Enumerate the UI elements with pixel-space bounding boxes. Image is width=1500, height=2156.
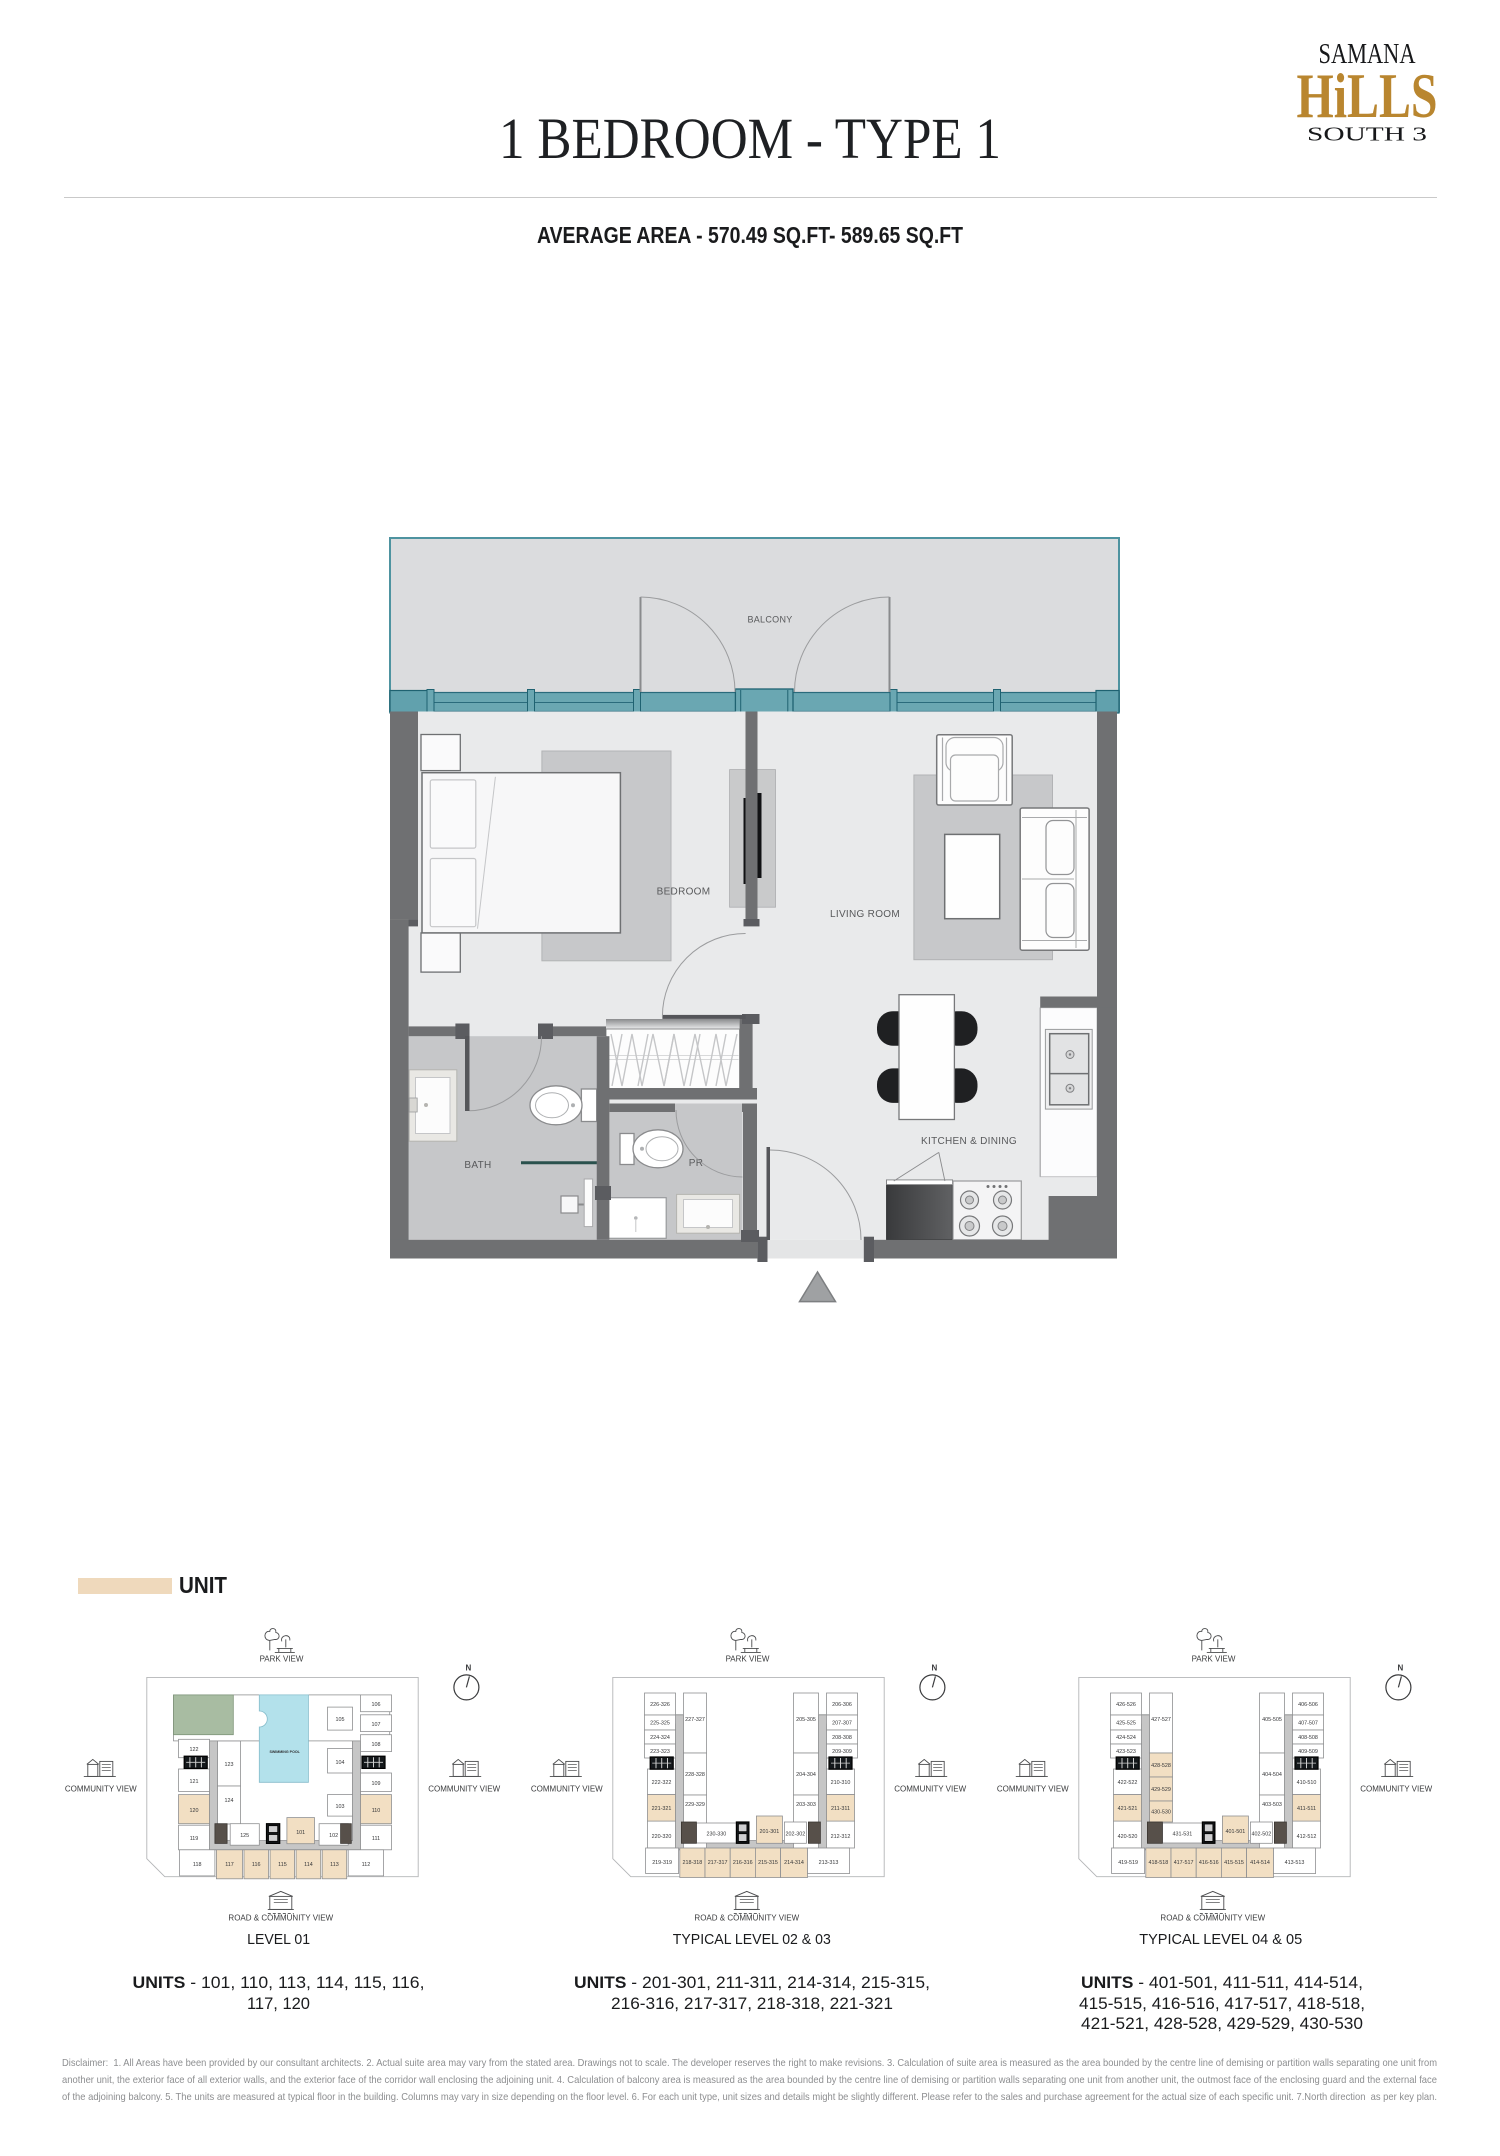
svg-text:431-531: 431-531 — [1173, 1832, 1193, 1838]
svg-text:207-307: 207-307 — [832, 1721, 852, 1727]
svg-text:112: 112 — [362, 1862, 371, 1868]
svg-text:208-308: 208-308 — [832, 1735, 852, 1741]
svg-text:404-504: 404-504 — [1262, 1772, 1282, 1778]
svg-text:101: 101 — [296, 1830, 305, 1836]
svg-text:COMMUNITY VIEW: COMMUNITY VIEW — [65, 1784, 137, 1793]
svg-text:415-515, 416-516, 417-517, 418: 415-515, 416-516, 417-517, 418-518, — [1079, 1995, 1365, 2013]
svg-text:SWIMMING POOL: SWIMMING POOL — [270, 1750, 301, 1754]
svg-text:LIVING ROOM: LIVING ROOM — [830, 909, 900, 920]
svg-text:KITCHEN & DINING: KITCHEN & DINING — [921, 1136, 1017, 1147]
svg-text:ROAD & COMMUNITY VIEW: ROAD & COMMUNITY VIEW — [694, 1913, 799, 1922]
svg-text:413-513: 413-513 — [1285, 1860, 1305, 1866]
svg-text:ROAD & COMMUNITY VIEW: ROAD & COMMUNITY VIEW — [1160, 1913, 1265, 1922]
svg-text:403-503: 403-503 — [1262, 1802, 1282, 1808]
svg-text:428-528: 428-528 — [1151, 1763, 1171, 1769]
svg-text:405-505: 405-505 — [1262, 1717, 1282, 1723]
svg-text:222-322: 222-322 — [652, 1780, 672, 1786]
svg-text:104: 104 — [336, 1760, 345, 1766]
svg-text:426-526: 426-526 — [1116, 1702, 1136, 1708]
svg-text:125: 125 — [240, 1833, 249, 1839]
svg-text:219-319: 219-319 — [652, 1860, 672, 1866]
svg-text:217-317: 217-317 — [708, 1860, 728, 1866]
svg-text:416-516: 416-516 — [1199, 1860, 1219, 1866]
svg-text:113: 113 — [330, 1862, 339, 1868]
svg-text:1 BEDROOM - TYPE 1: 1 BEDROOM - TYPE 1 — [499, 106, 1001, 171]
svg-text:420-520: 420-520 — [1118, 1834, 1138, 1840]
svg-text:114: 114 — [304, 1862, 313, 1868]
svg-text:223-323: 223-323 — [650, 1749, 670, 1755]
svg-text:117, 120: 117, 120 — [247, 1995, 310, 2013]
svg-text:211-311: 211-311 — [831, 1806, 850, 1812]
svg-text:412-512: 412-512 — [1297, 1834, 1317, 1840]
svg-text:224-324: 224-324 — [650, 1735, 670, 1741]
svg-text:Disclaimer: 1. All Areas have: Disclaimer: 1. All Areas have been provi… — [62, 2057, 1437, 2069]
svg-text:UNITS - 201-301, 211-311, 214-: UNITS - 201-301, 211-311, 214-314, 215-3… — [574, 1974, 930, 1992]
svg-text:212-312: 212-312 — [831, 1834, 851, 1840]
svg-text:406-506: 406-506 — [1298, 1702, 1318, 1708]
svg-text:216-316: 216-316 — [733, 1860, 753, 1866]
svg-text:215-315: 215-315 — [758, 1860, 778, 1866]
svg-text:423-523: 423-523 — [1116, 1749, 1136, 1755]
svg-text:HiLLS: HiLLS — [1297, 60, 1438, 131]
svg-text:213-313: 213-313 — [819, 1860, 839, 1866]
svg-text:402-502: 402-502 — [1252, 1832, 1272, 1838]
svg-text:117: 117 — [225, 1862, 234, 1868]
svg-text:UNIT: UNIT — [179, 1572, 227, 1598]
svg-text:118: 118 — [193, 1862, 202, 1868]
svg-text:121: 121 — [190, 1779, 199, 1785]
svg-text:230-330: 230-330 — [707, 1832, 727, 1838]
svg-text:408-508: 408-508 — [1298, 1735, 1318, 1741]
svg-text:214-314: 214-314 — [784, 1860, 804, 1866]
svg-text:417-517: 417-517 — [1174, 1860, 1194, 1866]
svg-text:PR: PR — [689, 1158, 704, 1169]
svg-text:419-519: 419-519 — [1118, 1860, 1138, 1866]
svg-text:216-316, 217-317, 218-318, 221: 216-316, 217-317, 218-318, 221-321 — [611, 1995, 893, 2013]
svg-text:TYPICAL LEVEL 02 & 03: TYPICAL LEVEL 02 & 03 — [673, 1931, 831, 1948]
svg-text:110: 110 — [372, 1808, 381, 1814]
svg-text:202-302: 202-302 — [786, 1832, 806, 1838]
svg-text:UNITS - 401-501, 411-511, 414-: UNITS - 401-501, 411-511, 414-514, — [1081, 1974, 1363, 1992]
svg-text:206-306: 206-306 — [832, 1702, 852, 1708]
svg-text:415-515: 415-515 — [1224, 1860, 1244, 1866]
svg-text:218-318: 218-318 — [683, 1860, 703, 1866]
svg-text:N: N — [932, 1663, 938, 1672]
svg-text:PARK VIEW: PARK VIEW — [726, 1654, 770, 1663]
svg-text:410-510: 410-510 — [1297, 1780, 1317, 1786]
svg-text:210-310: 210-310 — [831, 1780, 851, 1786]
svg-text:201-301: 201-301 — [760, 1829, 780, 1835]
svg-text:220-320: 220-320 — [652, 1834, 672, 1840]
svg-text:105: 105 — [336, 1717, 345, 1723]
svg-text:203-303: 203-303 — [796, 1802, 816, 1808]
svg-text:BALCONY: BALCONY — [747, 615, 792, 625]
svg-text:229-329: 229-329 — [685, 1802, 705, 1808]
svg-text:205-305: 205-305 — [796, 1717, 816, 1723]
svg-text:111: 111 — [372, 1836, 380, 1842]
svg-text:PARK VIEW: PARK VIEW — [1192, 1654, 1236, 1663]
svg-text:N: N — [466, 1663, 472, 1672]
svg-text:109: 109 — [372, 1781, 381, 1787]
svg-text:429-529: 429-529 — [1151, 1787, 1171, 1793]
svg-text:401-501: 401-501 — [1226, 1829, 1246, 1835]
svg-text:427-527: 427-527 — [1151, 1717, 1171, 1723]
svg-text:COMMUNITY VIEW: COMMUNITY VIEW — [894, 1784, 966, 1793]
svg-text:TYPICAL LEVEL 04 & 05: TYPICAL LEVEL 04 & 05 — [1139, 1931, 1302, 1948]
svg-text:PARK VIEW: PARK VIEW — [260, 1654, 304, 1663]
svg-text:ROAD & COMMUNITY VIEW: ROAD & COMMUNITY VIEW — [228, 1913, 333, 1922]
svg-text:115: 115 — [278, 1862, 287, 1868]
svg-text:102: 102 — [329, 1833, 338, 1839]
svg-text:409-509: 409-509 — [1298, 1749, 1318, 1755]
svg-text:221-321: 221-321 — [652, 1806, 672, 1812]
svg-text:414-514: 414-514 — [1250, 1860, 1270, 1866]
svg-text:COMMUNITY VIEW: COMMUNITY VIEW — [531, 1784, 603, 1793]
svg-text:422-522: 422-522 — [1118, 1780, 1138, 1786]
svg-text:COMMUNITY VIEW: COMMUNITY VIEW — [1360, 1784, 1432, 1793]
svg-text:226-326: 226-326 — [650, 1702, 670, 1708]
svg-text:116: 116 — [252, 1862, 261, 1868]
svg-text:430-530: 430-530 — [1151, 1810, 1171, 1816]
svg-text:106: 106 — [372, 1702, 381, 1708]
svg-text:424-524: 424-524 — [1116, 1735, 1136, 1741]
svg-text:122: 122 — [190, 1747, 199, 1753]
svg-text:425-525: 425-525 — [1116, 1721, 1136, 1727]
svg-text:107: 107 — [372, 1722, 381, 1728]
svg-text:of the adjoining balcony. 5. T: of the adjoining balcony. 5. The units a… — [62, 2091, 1437, 2103]
svg-text:411-511: 411-511 — [1297, 1806, 1316, 1812]
svg-text:227-327: 227-327 — [685, 1717, 705, 1723]
svg-text:UNITS - 101, 110, 113, 114, 11: UNITS - 101, 110, 113, 114, 115, 116, — [133, 1974, 425, 1992]
svg-text:421-521: 421-521 — [1118, 1806, 1138, 1812]
svg-text:209-309: 209-309 — [832, 1749, 852, 1755]
svg-text:BEDROOM: BEDROOM — [657, 887, 711, 898]
svg-text:SOUTH 3: SOUTH 3 — [1307, 124, 1427, 146]
svg-text:COMMUNITY VIEW: COMMUNITY VIEW — [997, 1784, 1069, 1793]
svg-text:421-521, 428-528, 429-529, 430: 421-521, 428-528, 429-529, 430-530 — [1081, 2015, 1363, 2033]
svg-text:COMMUNITY VIEW: COMMUNITY VIEW — [428, 1784, 500, 1793]
svg-text:123: 123 — [225, 1762, 234, 1768]
svg-text:another unit, the exterior fac: another unit, the exterior face of all e… — [62, 2074, 1437, 2086]
svg-text:LEVEL 01: LEVEL 01 — [247, 1931, 310, 1948]
svg-text:120: 120 — [190, 1808, 199, 1814]
svg-text:124: 124 — [225, 1798, 234, 1804]
svg-text:228-328: 228-328 — [685, 1772, 705, 1778]
svg-text:418-518: 418-518 — [1149, 1860, 1169, 1866]
svg-text:N: N — [1398, 1663, 1404, 1672]
svg-text:407-507: 407-507 — [1298, 1721, 1318, 1727]
svg-text:BATH: BATH — [464, 1160, 491, 1171]
svg-text:225-325: 225-325 — [650, 1721, 670, 1727]
svg-text:103: 103 — [336, 1804, 345, 1810]
svg-text:204-304: 204-304 — [796, 1772, 816, 1778]
svg-text:119: 119 — [190, 1836, 199, 1842]
svg-text:108: 108 — [372, 1742, 381, 1748]
svg-text:AVERAGE AREA - 570.49 SQ.FT- 5: AVERAGE AREA - 570.49 SQ.FT- 589.65 SQ.F… — [537, 222, 963, 248]
